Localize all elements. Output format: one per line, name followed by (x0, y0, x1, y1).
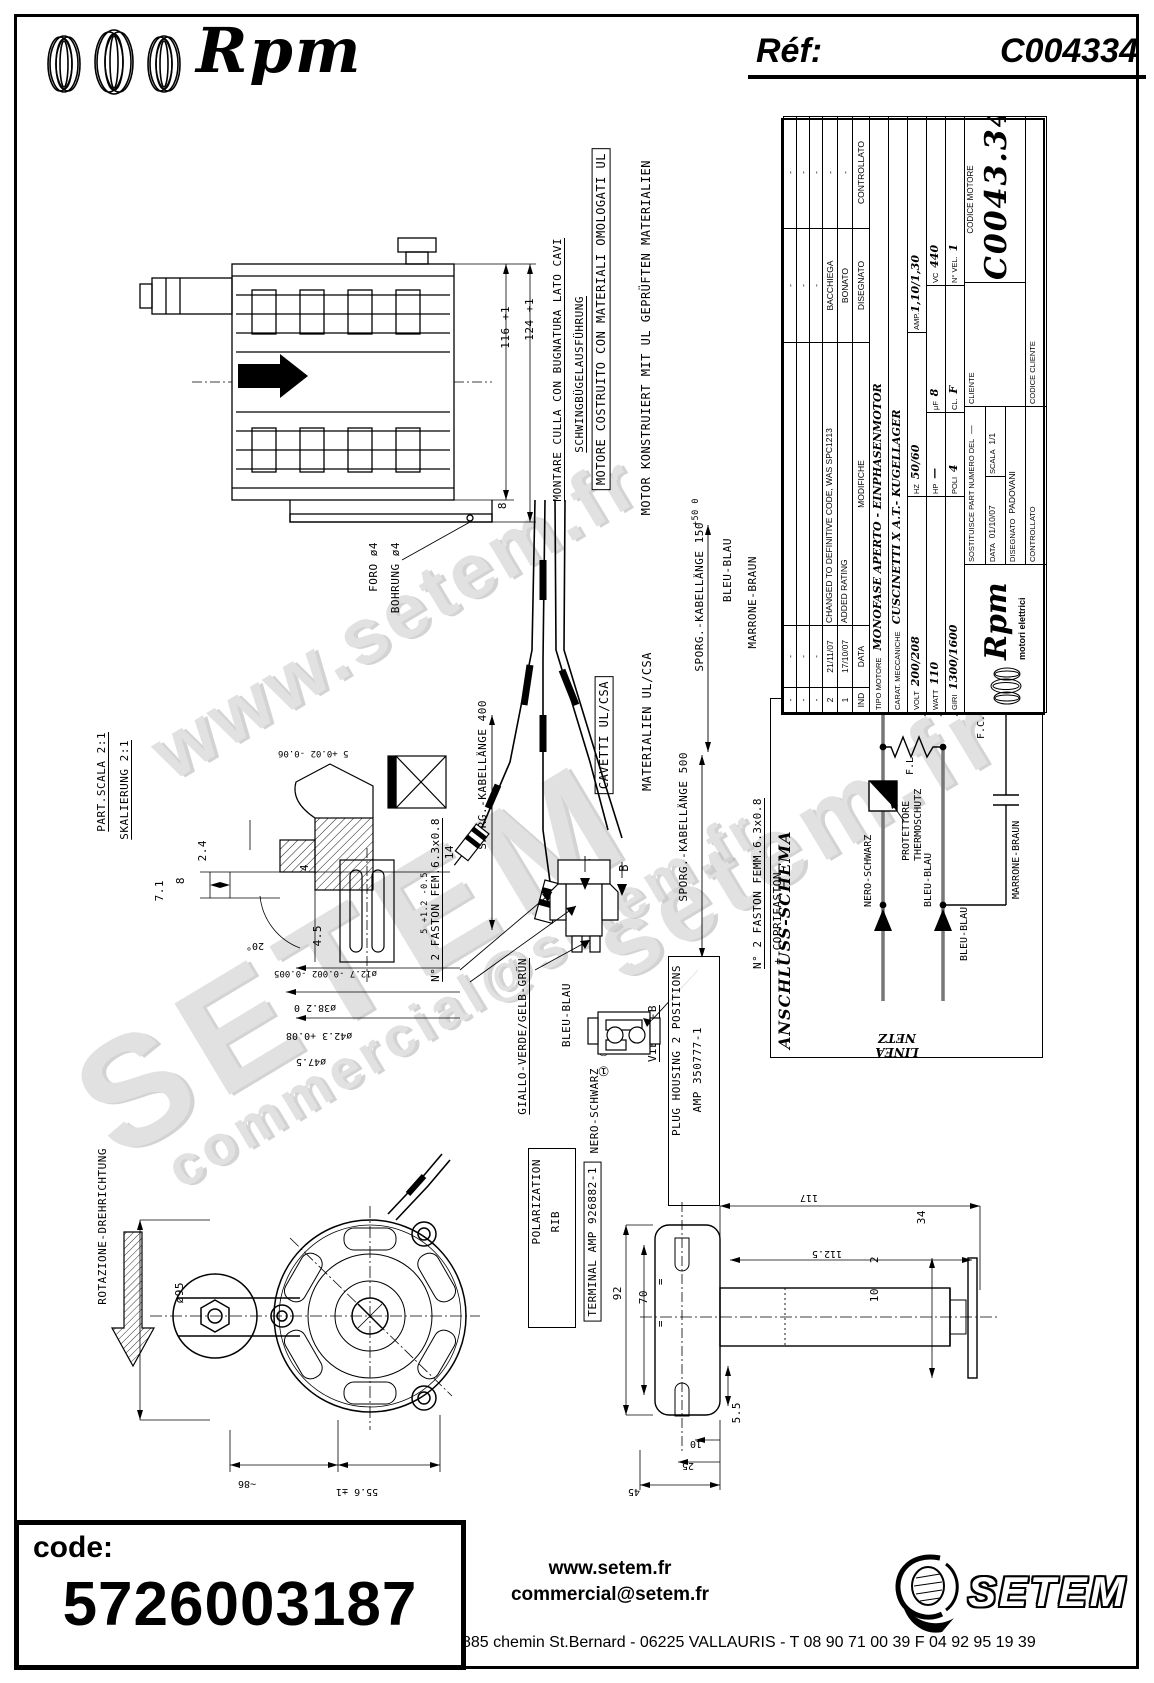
schema-marrone-label: MARRONE-BRAUN (1011, 821, 1022, 899)
tb-row-carat: CARAT. MECCANICHE CUSCINETTI X A.T.- KUG… (888, 116, 908, 713)
shaft-detail-view (200, 700, 470, 1020)
rev-cell: - (783, 687, 797, 713)
schema-prot-line2: THERMOSCHUTZ (913, 789, 924, 861)
label-part-scala: PART.SCALA 2:1 (96, 732, 108, 832)
rev-header-ind: IND (852, 687, 870, 713)
amp-value: 1,10/1,30 (909, 255, 922, 313)
tb-logo-script: Rpm (979, 582, 1014, 660)
rev-cell: - (796, 687, 810, 713)
setem-brand-text: SETEM (968, 1568, 1128, 1616)
sostituisce-value: — (966, 425, 976, 434)
tb-logo-subtext: motori elettrici (1017, 597, 1027, 660)
rev-header-modifiche: MODIFICHE (852, 342, 870, 626)
rev-cell: - (809, 116, 823, 229)
tb-scala-cell: SCALA 1/1 (985, 406, 1006, 477)
hp-label: HP (931, 484, 940, 494)
uf-label: μF (931, 401, 940, 410)
tb-cell-volt: VOLT 200/208 (907, 496, 927, 713)
hp-value: — (928, 468, 941, 479)
data-label: DATA (988, 543, 997, 562)
code-value: 5726003187 (19, 1569, 461, 1640)
rev-cell: BONATO (837, 228, 853, 343)
vc-value: 440 (928, 245, 941, 268)
tb-sostituisce: SOSTITUISCE PART NUMERO DEL — (964, 406, 986, 565)
rpm-coils-small-icon (987, 664, 1027, 708)
note-ul-materials-it: MOTORE COSTRUITO CON MATERIALI OMOLOGATI… (592, 148, 611, 490)
tb-disegnato-cell: DISEGNATO PADOVANI (1005, 406, 1026, 565)
setem-logo-icon (888, 1548, 970, 1636)
ref-label: Réf: (756, 32, 822, 71)
cl-label: CL. (950, 398, 959, 410)
rev-header-controllato: CONTROLLATO (852, 116, 870, 229)
rev-cell: - (796, 228, 810, 343)
rev-cell: - (783, 116, 797, 229)
nvel-label: N° VEL. (950, 256, 959, 283)
tipo-label: TIPO MOTORE (874, 658, 883, 710)
dim-47-5: ø47.5 (296, 1056, 326, 1067)
codice-cliente-label: CODICE CLIENTE (1028, 341, 1037, 404)
polarization-line1: POLARIZATION (531, 1159, 543, 1244)
rev-header-data: DATA (852, 625, 870, 688)
tipo-value: MONOFASE APERTO - EINPHASENMOTOR (871, 383, 884, 650)
amp-label: AMP. (912, 313, 921, 330)
brand-logo-text: Rpm (196, 14, 362, 87)
watt-label: WATT (931, 690, 940, 710)
label-polarization-rib: POLARIZATION RIB (528, 1148, 576, 1328)
rev-cell: - (783, 625, 797, 688)
label-schwingbuegel: SCHWINGBÜGELAUSFÜHRUNG (574, 296, 586, 453)
dim-42-3: ø42.3 +0.08 (286, 1030, 352, 1041)
rev-cell: - (809, 625, 823, 688)
rev-cell: - (809, 228, 823, 343)
poli-label: POLI (950, 477, 959, 494)
code-label: code: (33, 1531, 113, 1565)
vc-label: VC (931, 273, 940, 283)
rev-header-disegnato: DISEGNATO (852, 228, 870, 343)
tb-codice-cliente-cell: CODICE CLIENTE (1025, 116, 1047, 407)
giri-label: GIRI (950, 695, 959, 710)
rev-cell (783, 342, 797, 626)
rev-cell: 17/10/07 (837, 625, 853, 688)
cliente-label: CLIENTE (967, 372, 976, 404)
poli-value: 4 (947, 465, 960, 473)
dim-8b: 8 (175, 877, 187, 884)
scala-label: SCALA (988, 449, 997, 474)
schema-bleu-label-1: BLEU-BLAU (923, 853, 934, 907)
dim-7-1: 7.1 (154, 880, 166, 901)
rev-cell: - (796, 625, 810, 688)
plug-housing-line1: PLUG HOUSING 2 POSITIONS (671, 965, 683, 1136)
website-url: www.setem.fr (455, 1556, 765, 1582)
carat-value: CUSCINETTI X A.T.- KUGELLAGER (890, 410, 903, 625)
tb-codice-motore-cell: CODICE MOTORE C0043.34 (964, 116, 1026, 283)
tb-cell-amp: AMP.1,10/1,30 (907, 116, 927, 333)
schema-nero-label: NERO-SCHWARZ (863, 835, 874, 907)
data-value: 01/10/07 (987, 505, 997, 538)
tb-logo-cell: Rpm motori elettrici (964, 564, 1047, 713)
tb-cell-watt: WATT 110 (926, 496, 946, 713)
volt-label: VOLT (912, 691, 921, 710)
controllato-label: CONTROLLATO (1028, 506, 1037, 562)
schema-prot-line1: PROTETTORE (901, 801, 912, 861)
tb-cell-vc: VC 440 (926, 116, 946, 286)
rpm-coils-icon (34, 24, 194, 102)
tb-cell-nvel: N° VEL. 1 (945, 116, 965, 286)
nvel-value: 1 (947, 244, 960, 252)
address-line: 885 chemin St.Bernard - 06225 VALLAURIS … (462, 1634, 1137, 1652)
ref-value: C004334 (1000, 32, 1138, 71)
scala-value: 1/1 (987, 433, 997, 445)
disegnato-label: DISEGNATO (1008, 519, 1017, 562)
schema-fl-label: F.L. (905, 751, 916, 775)
wiring-schema: ANSCHLUSS-SCHEMA LINEA NETZ (770, 698, 1043, 1058)
rev-cell: - (783, 228, 797, 343)
rev-cell: - (822, 116, 838, 229)
codice-motore-label: CODICE MOTORE (966, 119, 975, 280)
code-box: code: 5726003187 (14, 1520, 466, 1670)
drawing-sheet: www.setem.fr SETEM commercial@setem.fr s… (0, 0, 1154, 1683)
watt-value: 110 (928, 662, 941, 685)
schema-fc-label: F.C. (976, 715, 987, 739)
giri-value: 1300/1600 (947, 625, 960, 690)
polarization-line2: RIB (550, 1211, 562, 1232)
sostituisce-label: SOSTITUISCE PART NUMERO DEL (967, 439, 976, 562)
rev-cell (796, 342, 810, 626)
rev-cell: - (796, 116, 810, 229)
uf-value: 8 (928, 389, 941, 397)
contact-block: www.setem.fr commercial@setem.fr (455, 1556, 765, 1607)
schema-bleu-label-2: BLEU-BLAU (959, 907, 970, 961)
rev-cell: 1 (837, 687, 853, 713)
rev-cell: 21/11/07 (822, 625, 838, 688)
rev-cell: - (809, 687, 823, 713)
disegnato-value: PADOVANI (1007, 471, 1017, 514)
tb-cell-cl: CL. F (945, 285, 965, 413)
rev-cell: ADDED RATING (837, 342, 853, 626)
tb-data-cell: DATA 01/10/07 (985, 476, 1006, 565)
plug-housing-line2: AMP 350777-1 (692, 1027, 704, 1112)
tb-controllato-cell: CONTROLLATO (1025, 406, 1047, 565)
rev-cell: CHANGED TO DEFINITIVE CODE, WAS SPC1213 (822, 342, 838, 626)
note-ul-materials-de: MOTOR KONSTRUIERT MIT UL GEPRÜFTEN MATER… (640, 160, 653, 515)
rev-cell: BACCHIEGA (822, 228, 838, 343)
tb-row-tipo: TIPO MOTORE MONOFASE APERTO - EINPHASENM… (869, 116, 889, 713)
contact-email: commercial@setem.fr (455, 1582, 765, 1608)
label-skalierung: SKALIERUNG 2:1 (119, 740, 131, 840)
rev-cell: - (837, 116, 853, 229)
cradle-side-view (580, 1140, 1010, 1500)
tb-cell-poli: POLI 4 (945, 412, 965, 497)
cl-value: F (947, 386, 960, 394)
tb-cliente-cell: CLIENTE (964, 282, 1026, 407)
motor-front-view (90, 1120, 490, 1490)
codice-motore-value: C0043.34 (979, 119, 1014, 280)
tb-cell-hz: HZ 50/60 (907, 332, 927, 497)
carat-label: CARAT. MECCANICHE (893, 631, 902, 710)
reference-row: Réf: C004334 (748, 32, 1146, 79)
tb-cell-giri: GIRI 1300/1600 (945, 496, 965, 713)
hz-label: HZ (912, 484, 921, 494)
title-block: - - - - - - - - - - - - 2 21/11/07 CHANG… (781, 118, 1045, 715)
label-faston-femm: N° 2 FASTON FEMM.6.3x0.8 (752, 798, 764, 969)
rev-cell (809, 342, 823, 626)
volt-value: 200/208 (909, 636, 922, 686)
tb-cell-uf: μF 8 (926, 285, 946, 413)
hz-value: 50/60 (909, 445, 922, 480)
rev-cell: 2 (822, 687, 838, 713)
tb-cell-hp: HP — (926, 412, 946, 497)
